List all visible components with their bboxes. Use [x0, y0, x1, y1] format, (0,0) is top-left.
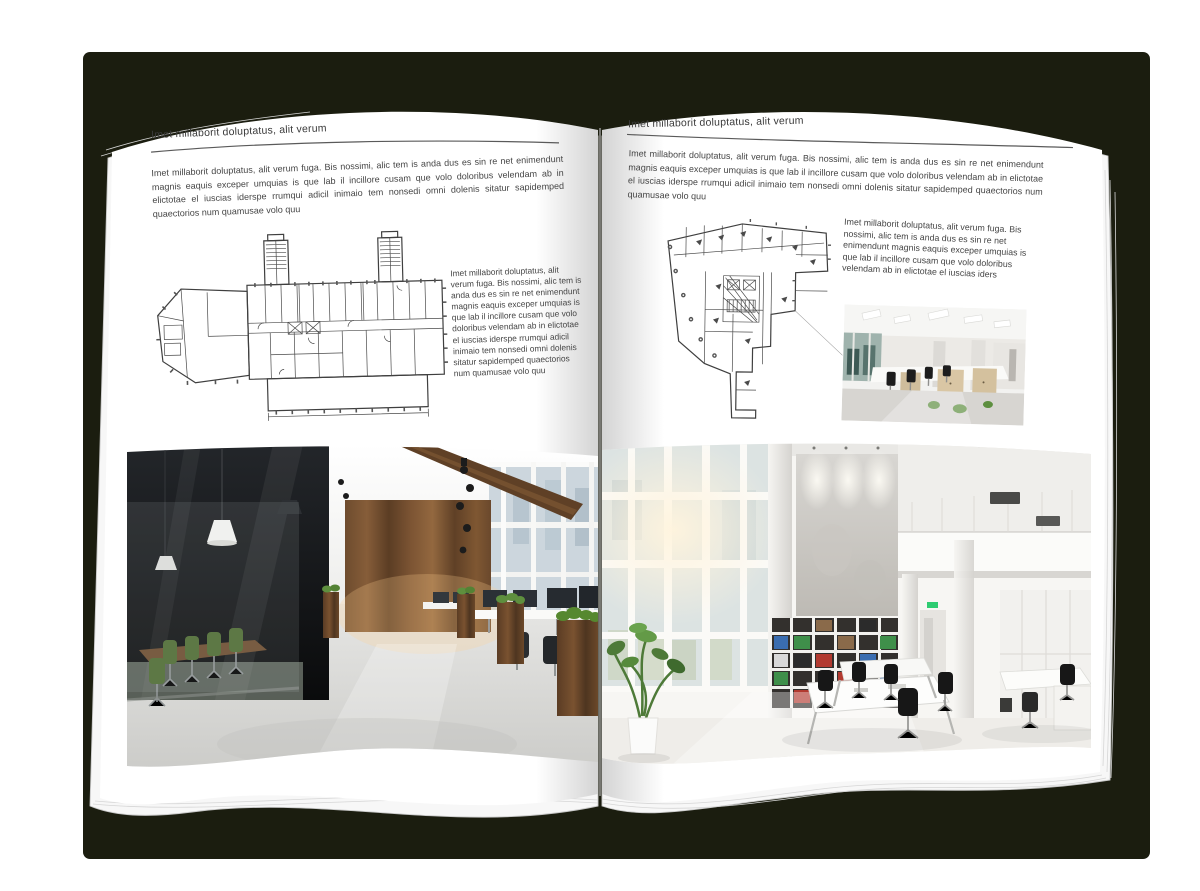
exit-sign: [927, 602, 938, 608]
glazed-wall: [602, 440, 779, 692]
photo-left-office: [127, 444, 598, 776]
concrete-wall: [796, 450, 898, 616]
right-page-side-text: Imet millaborit doluptatus, alit verum f…: [842, 217, 1040, 284]
plan2-ticks: [667, 218, 832, 359]
floorplan-right: [644, 213, 849, 424]
left-page-side-text: Imet millaborit doluptatus, alit verum f…: [450, 264, 587, 380]
mockup-stage: Imet millaborit doluptatus, alit verum I…: [0, 0, 1200, 891]
photo-right-atrium: [602, 440, 1091, 774]
photo-small-office: [841, 304, 1026, 425]
right-page-intro: Imet millaborit doluptatus, alit verum f…: [627, 147, 1043, 213]
meeting-area: [127, 502, 299, 706]
plan-window-ticks: [155, 278, 449, 418]
floorplan-left: [145, 222, 452, 428]
right-header-rule: [625, 129, 1075, 150]
